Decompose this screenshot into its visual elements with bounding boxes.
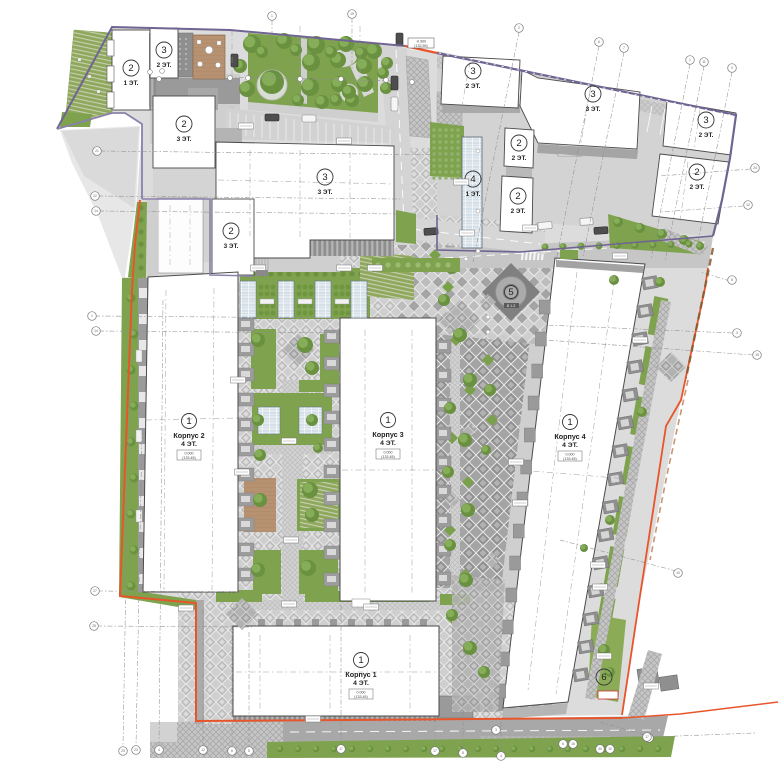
- svg-text:17: 17: [433, 749, 437, 753]
- svg-text:6: 6: [562, 742, 564, 746]
- svg-text:4 ЭТ.: 4 ЭТ.: [380, 440, 396, 447]
- svg-text:1: 1: [567, 417, 572, 428]
- svg-text:3 ЭТ.: 3 ЭТ.: [224, 243, 239, 250]
- svg-text:27: 27: [93, 589, 97, 593]
- svg-text:5: 5: [462, 751, 464, 755]
- svg-text:10: 10: [608, 747, 612, 751]
- svg-text:7: 7: [623, 46, 625, 50]
- svg-text:30: 30: [598, 747, 602, 751]
- svg-text:15: 15: [755, 353, 759, 357]
- svg-text:6: 6: [231, 749, 233, 753]
- svg-text:3: 3: [161, 45, 166, 56]
- svg-text:2 ЭТ.: 2 ЭТ.: [157, 62, 172, 69]
- svg-text:0.000: 0.000: [566, 453, 575, 457]
- svg-text:В 1-3: В 1-3: [507, 304, 516, 308]
- svg-text:Корпус 2: Корпус 2: [173, 431, 204, 440]
- svg-text:(133.45): (133.45): [563, 457, 576, 461]
- svg-text:3: 3: [495, 728, 497, 732]
- svg-text:1: 1: [358, 655, 363, 666]
- svg-text:24: 24: [753, 166, 757, 170]
- svg-text:2: 2: [518, 26, 520, 30]
- svg-text:12: 12: [201, 748, 205, 752]
- svg-text:5: 5: [731, 278, 733, 282]
- svg-text:6: 6: [601, 672, 606, 683]
- svg-text:4: 4: [470, 174, 475, 185]
- svg-text:(133.45): (133.45): [354, 695, 367, 699]
- svg-text:5: 5: [508, 287, 513, 298]
- svg-text:25: 25: [92, 624, 96, 628]
- svg-text:0.000: 0.000: [384, 451, 393, 455]
- svg-text:3: 3: [736, 331, 738, 335]
- svg-text:2: 2: [128, 63, 133, 74]
- svg-text:2: 2: [181, 119, 186, 130]
- svg-text:1: 1: [186, 416, 191, 427]
- svg-text:4: 4: [500, 754, 502, 758]
- svg-text:1 ЭТ.: 1 ЭТ.: [124, 80, 139, 87]
- svg-text:2: 2: [228, 226, 233, 237]
- svg-text:3: 3: [590, 89, 595, 100]
- svg-text:14: 14: [94, 329, 98, 333]
- svg-text:3: 3: [703, 115, 708, 126]
- svg-text:10: 10: [676, 571, 680, 575]
- svg-text:(133.45): (133.45): [381, 455, 394, 459]
- svg-text:Корпус 4: Корпус 4: [554, 432, 585, 441]
- svg-text:(132.55): (132.55): [414, 44, 427, 48]
- svg-text:16: 16: [571, 742, 575, 746]
- svg-text:3 ЭТ.: 3 ЭТ.: [318, 189, 333, 196]
- svg-text:3: 3: [731, 66, 733, 70]
- svg-text:2: 2: [694, 167, 699, 178]
- svg-text:4: 4: [158, 748, 160, 752]
- svg-text:0.000: 0.000: [357, 691, 366, 695]
- svg-text:11: 11: [702, 60, 706, 64]
- svg-text:2: 2: [516, 138, 521, 149]
- svg-text:4 ЭТ.: 4 ЭТ.: [353, 680, 369, 687]
- svg-text:2: 2: [515, 191, 520, 202]
- svg-text:Корпус 1: Корпус 1: [345, 670, 376, 679]
- svg-text:1: 1: [271, 14, 273, 18]
- svg-text:2 ЭТ.: 2 ЭТ.: [699, 132, 714, 139]
- svg-text:12: 12: [746, 203, 750, 207]
- svg-text:22: 22: [93, 194, 97, 198]
- svg-text:2 ЭТ.: 2 ЭТ.: [466, 83, 481, 90]
- svg-text:3: 3: [322, 172, 327, 183]
- svg-text:2 ЭТ.: 2 ЭТ.: [690, 184, 705, 191]
- svg-text:17: 17: [339, 747, 343, 751]
- svg-text:2 ЭТ.: 2 ЭТ.: [512, 155, 527, 162]
- svg-text:23: 23: [121, 749, 125, 753]
- svg-text:21: 21: [95, 149, 99, 153]
- svg-text:3 ЭТ.: 3 ЭТ.: [586, 106, 601, 113]
- svg-text:3 ЭТ.: 3 ЭТ.: [177, 136, 192, 143]
- svg-text:4 ЭТ.: 4 ЭТ.: [181, 441, 197, 448]
- svg-text:4 ЭТ.: 4 ЭТ.: [562, 442, 578, 449]
- svg-text:(133.45): (133.45): [182, 456, 195, 460]
- svg-text:2 ЭТ.: 2 ЭТ.: [511, 208, 526, 215]
- svg-text:1 ЭТ.: 1 ЭТ.: [466, 191, 481, 198]
- svg-text:19: 19: [350, 12, 354, 16]
- svg-text:1: 1: [689, 58, 691, 62]
- svg-text:5: 5: [248, 749, 250, 753]
- svg-text:6: 6: [598, 40, 600, 44]
- svg-text:14: 14: [94, 209, 98, 213]
- svg-text:Корпус 3: Корпус 3: [372, 430, 403, 439]
- svg-text:1: 1: [91, 314, 93, 318]
- svg-text:3: 3: [470, 66, 475, 77]
- svg-text:17: 17: [645, 735, 649, 739]
- svg-text:1: 1: [385, 415, 390, 426]
- svg-text:23: 23: [134, 748, 138, 752]
- svg-text:0.000: 0.000: [185, 452, 194, 456]
